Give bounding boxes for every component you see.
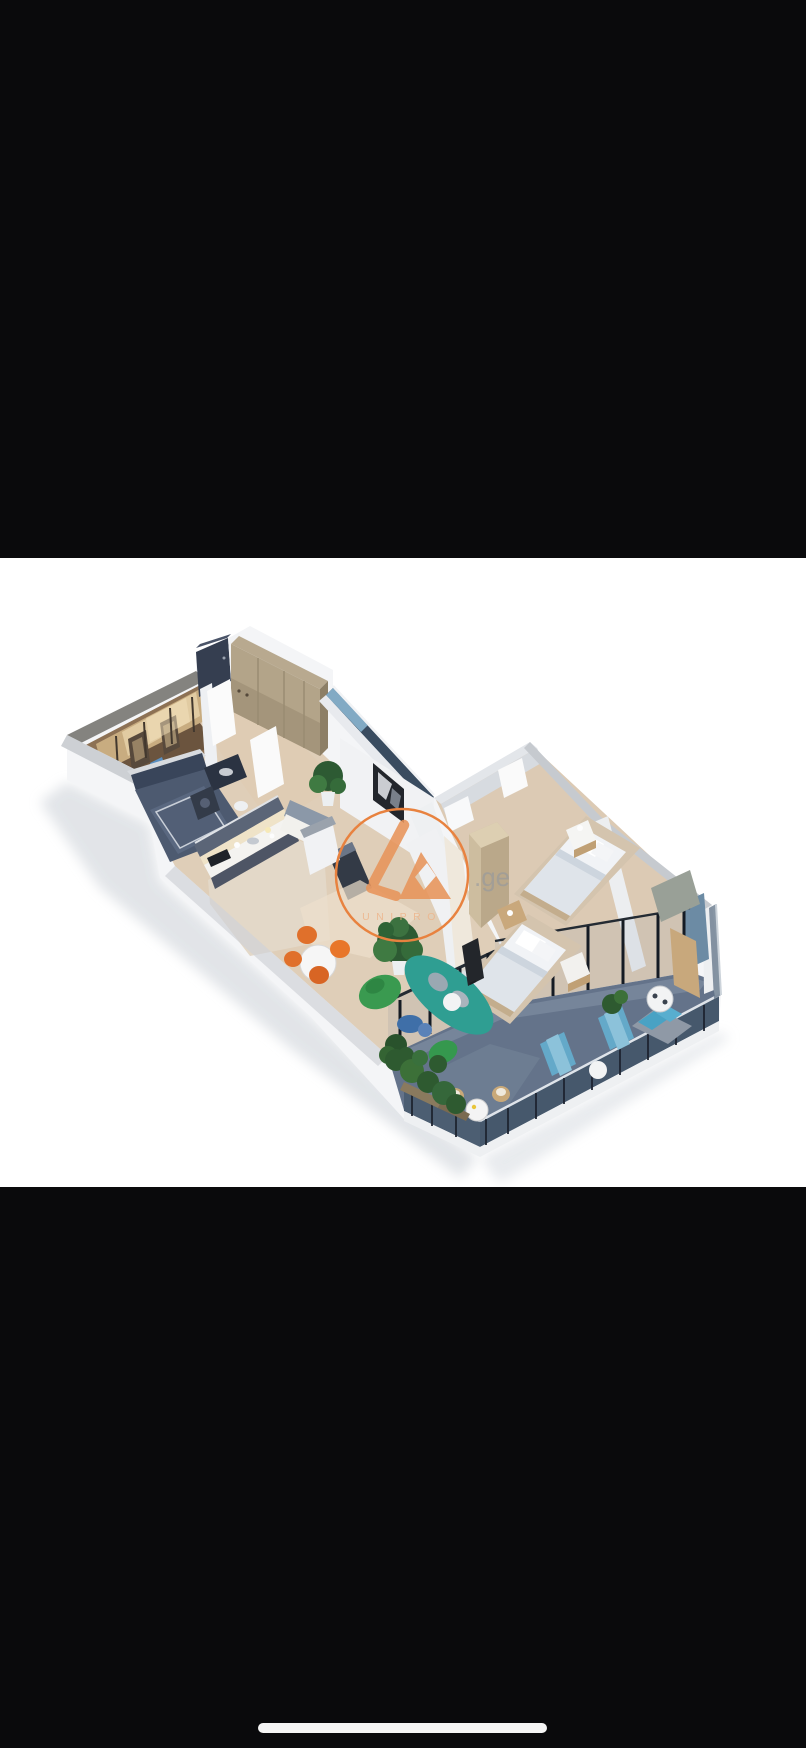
svg-text:.ge: .ge: [474, 862, 510, 892]
svg-text:UNIPRO: UNIPRO: [362, 911, 442, 923]
